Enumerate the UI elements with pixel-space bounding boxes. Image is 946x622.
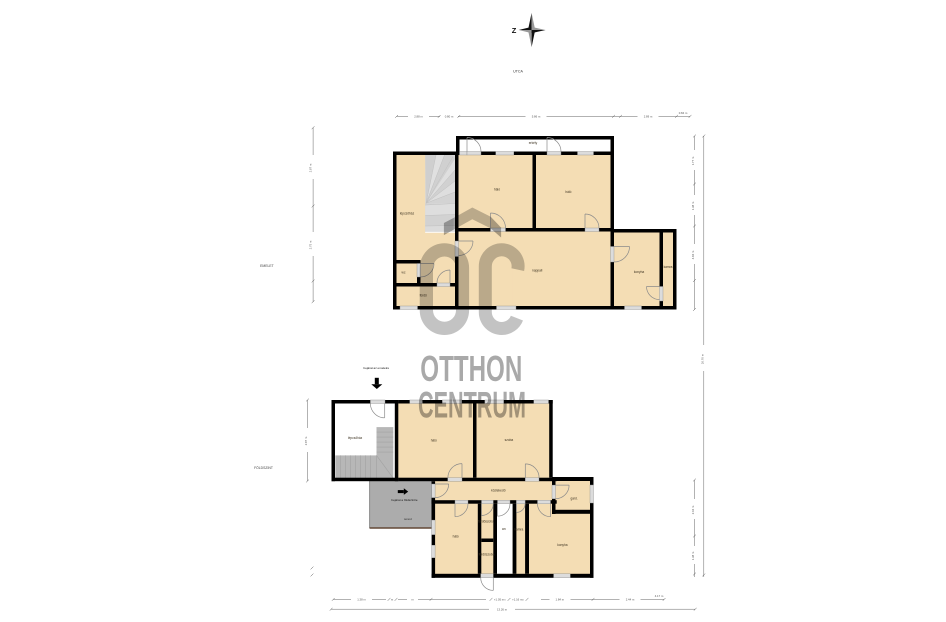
svg-text:2.75 m: 2.75 m xyxy=(309,240,313,249)
svg-text:4.17 m: 4.17 m xyxy=(655,594,664,598)
svg-text:CENTRUM: CENTRUM xyxy=(418,384,526,426)
svg-text:fürdőszoba: fürdőszoba xyxy=(478,519,494,523)
svg-text:2.04 m: 2.04 m xyxy=(691,505,695,514)
svg-text:terasz: terasz xyxy=(404,517,413,521)
svg-text:1.38 m: 1.38 m xyxy=(357,598,366,602)
svg-text:kamra: kamra xyxy=(664,265,673,269)
svg-text:1.77 m: 1.77 m xyxy=(691,156,695,165)
svg-text:1.84 m: 1.84 m xyxy=(556,598,565,602)
svg-text:1.38 m: 1.38 m xyxy=(691,201,695,210)
svg-text:5.86 m: 5.86 m xyxy=(532,115,541,119)
svg-text:FÖLDSZINT: FÖLDSZINT xyxy=(254,466,273,470)
svg-text:lépcsőház: lépcsőház xyxy=(348,436,363,440)
svg-text:0.80 m: 0.80 m xyxy=(445,115,454,119)
svg-text:gard.: gard. xyxy=(570,497,577,501)
svg-text:háló: háló xyxy=(431,439,437,443)
svg-text:háló: háló xyxy=(494,188,500,192)
svg-text:konyha: konyha xyxy=(557,543,568,547)
svg-text:lépcsőház: lépcsőház xyxy=(400,212,415,216)
svg-text:háló: háló xyxy=(453,534,459,538)
svg-text:1.38 m: 1.38 m xyxy=(691,551,695,560)
svg-text:EMELET: EMELET xyxy=(260,264,274,268)
svg-text:2.89 m: 2.89 m xyxy=(644,115,653,119)
svg-text:2.87 m: 2.87 m xyxy=(309,163,313,172)
svg-text:26.76 m: 26.76 m xyxy=(700,353,704,364)
svg-text:közlekedő: közlekedő xyxy=(491,489,506,493)
svg-text:2.87 m: 2.87 m xyxy=(304,436,308,445)
svg-text:nappali: nappali xyxy=(532,268,543,272)
svg-text:4.84 m: 4.84 m xyxy=(691,250,695,259)
svg-text:bejárat a földszintre: bejárat a földszintre xyxy=(391,498,418,502)
svg-text:wc: wc xyxy=(502,527,506,531)
svg-text:erkély: erkély xyxy=(529,141,538,145)
svg-text:2.88 m: 2.88 m xyxy=(414,115,423,119)
svg-text:0.84 m: 0.84 m xyxy=(679,111,688,115)
svg-text:Z: Z xyxy=(512,26,517,35)
svg-text:kamra: kamra xyxy=(514,528,523,532)
svg-text:fürdőszoba: fürdőszoba xyxy=(479,553,495,557)
svg-text:háló: háló xyxy=(565,190,571,194)
svg-text:szoba: szoba xyxy=(505,438,514,442)
svg-text:13.26 m: 13.26 m xyxy=(497,607,508,611)
svg-text:UTCA: UTCA xyxy=(513,70,523,74)
svg-text:2.44 m: 2.44 m xyxy=(626,598,635,602)
svg-text:+1.16 m»: +1.16 m» xyxy=(512,598,524,602)
svg-text:wc: wc xyxy=(402,271,406,275)
svg-text:konyha: konyha xyxy=(634,270,645,274)
svg-text:+1.05 m»: +1.05 m» xyxy=(494,598,506,602)
svg-text:bejárat az emeletre: bejárat az emeletre xyxy=(364,366,390,370)
